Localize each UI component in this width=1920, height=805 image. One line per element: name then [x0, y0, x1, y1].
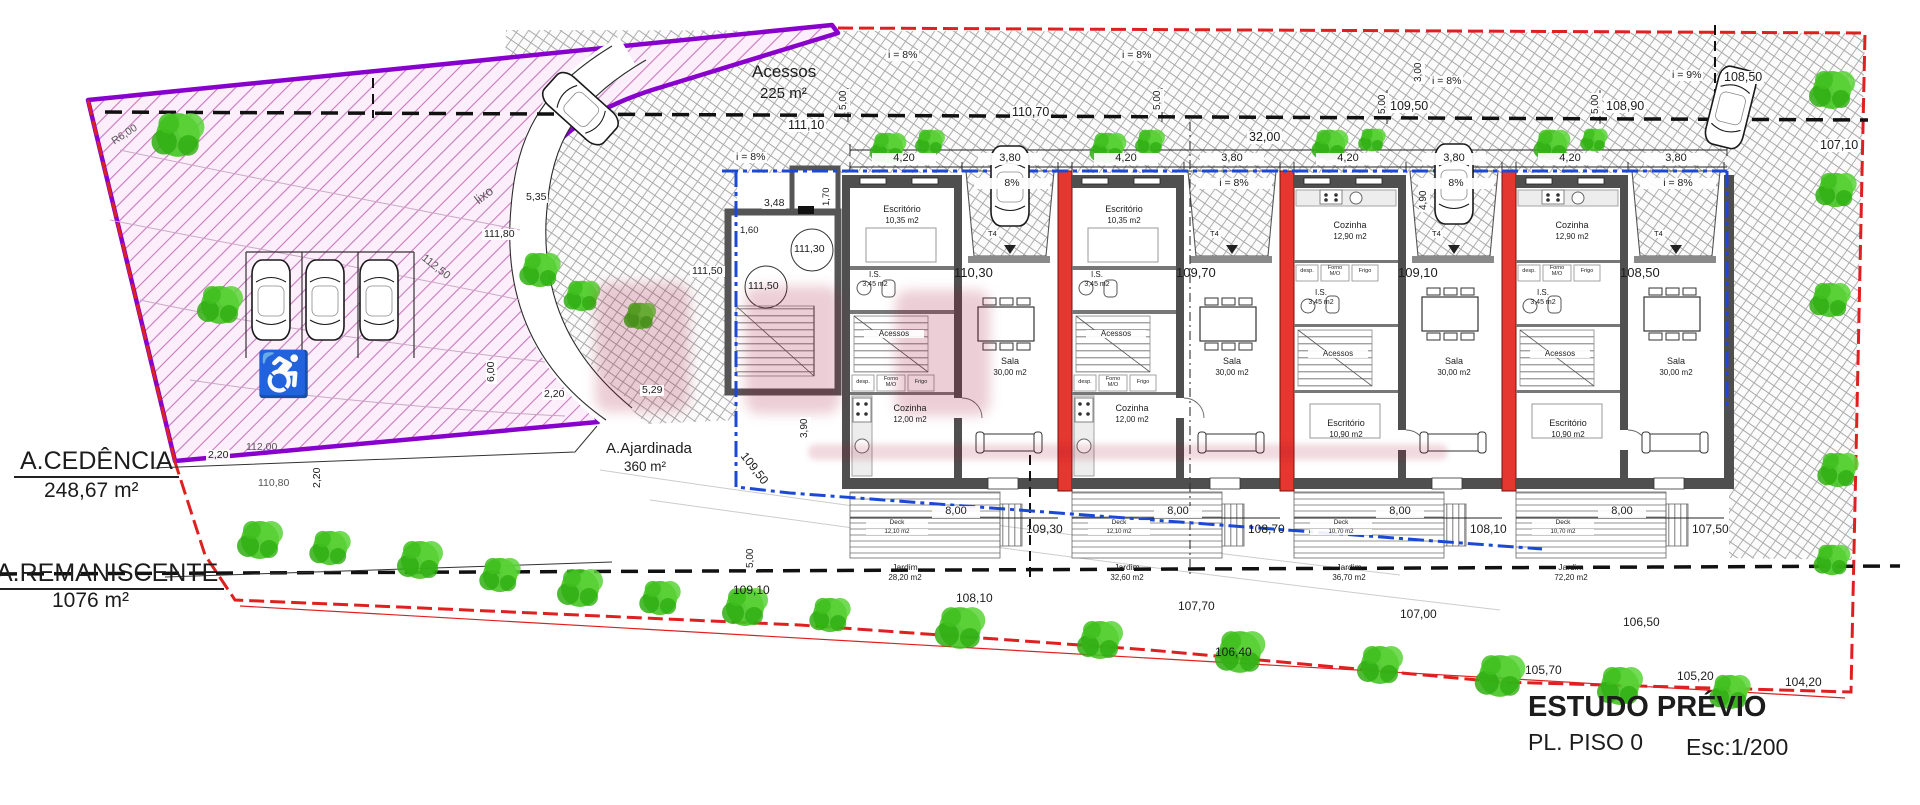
dim-ced-a: 2,20: [206, 450, 230, 461]
slope-3: i = 8%: [1430, 76, 1463, 87]
party-wall: [1058, 171, 1072, 491]
u3-wc: I.S.: [1304, 289, 1338, 297]
u1-type: T4: [986, 230, 999, 238]
u1-living: Sala: [968, 357, 1052, 366]
dim-right-a: 3,00: [1414, 61, 1425, 84]
site-plan-drawing: [0, 0, 1920, 805]
u2-bay-dim: 3,80: [1200, 153, 1264, 165]
u1-garden: Jardim: [872, 563, 938, 572]
u2-width-dim: 4,20: [1094, 153, 1158, 165]
dim-setback-2: 5,00: [1378, 93, 1389, 116]
u2-fridge: Frigo: [1131, 380, 1155, 386]
dim-setback-3: 5,00: [1591, 93, 1602, 116]
acessos-label: Acessos: [752, 63, 816, 81]
u2-garden: Jardim: [1094, 563, 1160, 572]
u3-entry-level: 109,10: [1398, 266, 1438, 280]
u2-room-bottom: Cozinha: [1096, 404, 1168, 413]
u2-room-top: Escritório: [1082, 205, 1166, 214]
u4-ramp: i = 8%: [1640, 178, 1716, 189]
u4-room-top-area: 12,90 m2: [1528, 233, 1616, 241]
u2-garden-area: 32,60 m2: [1094, 574, 1160, 582]
u1-living-area: 30,00 m2: [968, 369, 1052, 377]
cedencia-area: 248,67 m²: [44, 480, 139, 502]
u3-fridge: Frigo: [1353, 269, 1377, 275]
dim-overall: 32,00: [1247, 131, 1282, 144]
ajardinada-label: A.Ajardinada: [606, 441, 692, 457]
u4-deck-level: 107,50: [1692, 523, 1729, 536]
u1-entry-level: 110,30: [954, 266, 993, 280]
u3-living-area: 30,00 m2: [1412, 369, 1496, 377]
level-road-4: 108,50: [1722, 71, 1764, 84]
u4-room-bottom: Escritório: [1532, 419, 1604, 428]
u3-type: T4: [1430, 230, 1443, 238]
unit1-side-wall: [842, 175, 850, 489]
contour-c: 110,80: [258, 478, 289, 489]
dim-garden-depth: 3,90: [800, 417, 811, 440]
u2-pantry: desp.: [1075, 380, 1095, 386]
u3-width-dim: 4,20: [1316, 153, 1380, 165]
unit-4-plan: [1516, 171, 1724, 489]
u1-wc-area: 3,45 m2: [858, 281, 892, 288]
stair-dim-left-a: 5,35: [524, 192, 548, 203]
stair-level-mid: 111,50: [748, 281, 779, 292]
u4-room-top: Cozinha: [1528, 221, 1616, 230]
u3-bay-dim: 3,80: [1422, 153, 1486, 165]
party-wall: [1502, 171, 1516, 491]
u1-room-bottom: Cozinha: [874, 404, 946, 413]
u1-stairs: Acessos: [864, 330, 924, 338]
accessible-parking-icon: ♿: [256, 348, 311, 400]
drawing-title: ESTUDO PRÉVIO: [1528, 692, 1767, 722]
u3-room-bottom-area: 10,90 m2: [1310, 431, 1382, 439]
ajardinada-area: 360 m²: [624, 460, 666, 474]
level-garden-5: 106,40: [1215, 646, 1252, 659]
u2-deck-level: 108,70: [1248, 523, 1285, 536]
level-garden-2: 107,70: [1178, 600, 1215, 613]
dim-setback-1: 5,00: [1153, 89, 1164, 112]
u1-oven: Forno M/O: [878, 377, 904, 389]
u3-room-top-area: 12,90 m2: [1306, 233, 1394, 241]
slope-4: i = 9%: [1670, 70, 1703, 81]
slope-1: i = 8%: [886, 50, 919, 61]
u3-pantry: desp.: [1297, 269, 1317, 275]
u1-room-top-area: 10,35 m2: [860, 217, 944, 225]
u4-garden-area: 72,20 m2: [1538, 574, 1604, 582]
u1-width-dim: 4,20: [872, 153, 936, 165]
u2-wc-area: 3,45 m2: [1080, 281, 1114, 288]
party-wall: [1280, 171, 1294, 491]
u4-garden: Jardim: [1538, 563, 1604, 572]
level-garden-7: 105,20: [1677, 670, 1714, 683]
level-road-0: 111,10: [786, 119, 826, 132]
dim-ced-b: 2,20: [312, 466, 323, 490]
u1-garden-area: 28,20 m2: [872, 574, 938, 582]
dim-garden-left: 5,00: [746, 547, 757, 570]
u4-wc: I.S.: [1526, 289, 1560, 297]
u4-entry-level: 108,50: [1620, 266, 1660, 280]
level-garden-8: 104,20: [1785, 676, 1822, 689]
dim-right-b: 4,90: [1419, 189, 1430, 212]
stair-dim-w: 3,48: [762, 198, 786, 209]
u3-wc-area: 3,45 m2: [1304, 299, 1338, 306]
u4-deck-area: 10,70 m2: [1532, 529, 1594, 535]
u4-deck: Deck: [1532, 520, 1594, 527]
u3-stairs: Acessos: [1308, 350, 1368, 358]
level-road-2: 109,50: [1388, 100, 1430, 113]
u4-pantry: desp.: [1519, 269, 1539, 275]
u1-fridge: Frigo: [909, 380, 933, 386]
u2-deck: Deck: [1088, 520, 1150, 527]
u2-oven: Forno M/O: [1100, 377, 1126, 389]
remaniscente-leader: [165, 562, 612, 577]
site-plan: ♿ Acessos 225 m² A.CEDÊNCIA 248,67 m² A.…: [0, 0, 1920, 805]
u1-wc: I.S.: [858, 271, 892, 279]
u4-bay-dim: 3,80: [1644, 153, 1708, 165]
u4-living: Sala: [1634, 357, 1718, 366]
u1-deck-area: 12,10 m2: [866, 529, 928, 535]
u1-pantry: desp.: [853, 380, 873, 386]
dim-garden-front: 5,29: [640, 385, 664, 396]
u2-room-bottom-area: 12,00 m2: [1096, 416, 1168, 424]
u1-deck-level: 109,30: [1026, 523, 1063, 536]
level-garden-6: 105,70: [1525, 664, 1562, 677]
level-garden-3: 107,00: [1400, 608, 1437, 621]
level-road-3: 108,90: [1604, 100, 1646, 113]
stair-side-level: 111,50: [690, 266, 725, 277]
drawing-scale: Esc:1/200: [1686, 735, 1788, 759]
u1-deck: Deck: [866, 520, 928, 527]
stair-dim-d: 1,70: [822, 186, 832, 209]
u1-bay-dim: 3,80: [978, 153, 1042, 165]
dim-ced-d: 6,00: [486, 360, 497, 384]
u3-room-top: Cozinha: [1306, 221, 1394, 230]
contour-b: 112,00: [246, 442, 277, 453]
u3-garden-area: 36,70 m2: [1316, 574, 1382, 582]
drawing-subtitle: PL. PISO 0: [1528, 730, 1643, 754]
slope-0: i = 8%: [734, 152, 767, 163]
u4-type: T4: [1652, 230, 1665, 238]
u4-living-area: 30,00 m2: [1634, 369, 1718, 377]
level-road-5: 107,10: [1818, 139, 1860, 152]
u4-wc-area: 3,45 m2: [1526, 299, 1560, 306]
acessos-area: 225 m²: [760, 86, 807, 102]
u3-oven: Forno M/O: [1322, 266, 1348, 278]
stair-level-left: 111,80: [482, 229, 517, 240]
u4-oven: Forno M/O: [1544, 266, 1570, 278]
u2-entry-level: 109,70: [1176, 266, 1216, 280]
remaniscente-label: A.REMANISCENTE: [0, 560, 224, 590]
u2-stairs: Acessos: [1086, 330, 1146, 338]
stair-level-top: 111,30: [794, 244, 825, 255]
cedencia-label: A.CEDÊNCIA: [14, 448, 179, 478]
u2-wc: I.S.: [1080, 271, 1114, 279]
level-garden-4: 106,50: [1623, 616, 1660, 629]
dim-ced-c: 2,20: [542, 389, 566, 400]
slope-2: i = 8%: [1120, 50, 1153, 61]
u3-garden-dim: 8,00: [1376, 506, 1424, 518]
u2-garden-dim: 8,00: [1154, 506, 1202, 518]
u4-garden-dim: 8,00: [1598, 506, 1646, 518]
u4-fridge: Frigo: [1575, 269, 1599, 275]
level-road-1: 110,70: [1010, 106, 1051, 119]
dim-setback-0: 5,00: [839, 89, 850, 112]
u2-living-area: 30,00 m2: [1190, 369, 1274, 377]
level-garden-1: 108,10: [956, 592, 993, 605]
remaniscente-area: 1076 m²: [52, 590, 129, 612]
u1-room-top: Escritório: [860, 205, 944, 214]
u2-room-top-area: 10,35 m2: [1082, 217, 1166, 225]
u1-room-bottom-area: 12,00 m2: [874, 416, 946, 424]
u3-deck: Deck: [1310, 520, 1372, 527]
u3-room-bottom: Escritório: [1310, 419, 1382, 428]
u2-ramp: i = 8%: [1196, 178, 1272, 189]
u3-ramp: 8%: [1418, 178, 1494, 189]
u4-stairs: Acessos: [1530, 350, 1590, 358]
u2-living: Sala: [1190, 357, 1274, 366]
stair-dim-inner: 1,60: [740, 226, 759, 236]
u1-ramp: 8%: [974, 178, 1050, 189]
u3-garden: Jardim: [1316, 563, 1382, 572]
u2-type: T4: [1208, 230, 1221, 238]
u3-living: Sala: [1412, 357, 1496, 366]
level-garden-0: 109,10: [733, 584, 770, 597]
u2-deck-area: 12,10 m2: [1088, 529, 1150, 535]
u3-deck-level: 108,10: [1470, 523, 1507, 536]
u4-room-bottom-area: 10,90 m2: [1532, 431, 1604, 439]
u3-deck-area: 10,70 m2: [1310, 529, 1372, 535]
u1-garden-dim: 8,00: [932, 506, 980, 518]
u4-width-dim: 4,20: [1538, 153, 1602, 165]
